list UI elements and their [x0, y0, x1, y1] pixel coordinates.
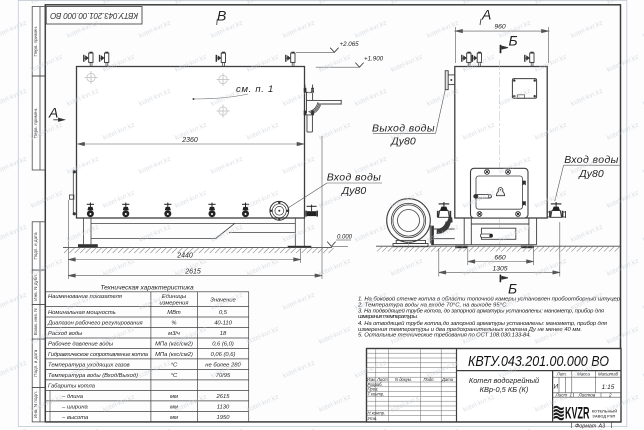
svg-text:2615: 2615: [216, 394, 231, 400]
svg-text:Перв. примен.: Перв. примен.: [33, 26, 38, 57]
svg-text:Диапазон рабочего регулировани: Диапазон рабочего регулирования: [47, 320, 143, 326]
svg-text:5. Остальные технические требо: 5. Остальные технические требования по О…: [358, 333, 531, 339]
svg-text:Подп. и дата: Подп. и дата: [33, 232, 38, 260]
svg-text:И: И: [553, 384, 558, 391]
svg-text:МПа (кгс/см2): МПа (кгс/см2): [155, 341, 193, 347]
svg-text:А: А: [48, 105, 58, 121]
svg-text:В: В: [217, 8, 226, 24]
svg-text:Взам. инв. N: Взам. инв. N: [33, 308, 38, 335]
svg-text:0,5: 0,5: [219, 310, 228, 316]
svg-text:измерения температуры.: измерения температуры.: [358, 314, 418, 320]
svg-text:Лит.: Лит.: [556, 372, 567, 377]
svg-text:Т.контр.: Т.контр.: [368, 392, 385, 397]
svg-text:0,6 (6,0): 0,6 (6,0): [212, 341, 234, 347]
svg-text:1305: 1305: [492, 266, 507, 273]
svg-text:м3/ч: м3/ч: [168, 331, 180, 337]
svg-text:А: А: [481, 7, 491, 23]
svg-text:660: 660: [494, 255, 506, 262]
svg-text:1130: 1130: [217, 404, 230, 410]
svg-text:Б: Б: [508, 281, 517, 297]
svg-text:КВТУ.043.201.00.000 ВО: КВТУ.043.201.00.000 ВО: [50, 11, 138, 20]
svg-text:°С: °С: [171, 373, 178, 379]
svg-text:1:15: 1:15: [602, 384, 615, 391]
svg-text:+1.900: +1.900: [364, 56, 384, 63]
svg-text:Вход воды: Вход воды: [327, 172, 382, 184]
svg-text:мм: мм: [170, 394, 178, 400]
svg-text:ЗАВОД РЭП: ЗАВОД РЭП: [592, 414, 615, 419]
svg-text:960: 960: [494, 24, 506, 31]
svg-text:2: 2: [608, 392, 612, 397]
svg-text:Масштаб: Масштаб: [598, 372, 619, 377]
svg-text:КВр-0,5 КБ (К): КВр-0,5 КБ (К): [480, 385, 529, 394]
svg-text:Утв.: Утв.: [368, 416, 378, 421]
svg-text:°С: °С: [171, 362, 178, 368]
svg-text:1950: 1950: [217, 415, 231, 421]
svg-text:18: 18: [220, 331, 227, 337]
svg-text:%: %: [171, 320, 176, 326]
svg-text:Температура воды (Вход/Выход): Температура воды (Вход/Выход): [48, 373, 138, 379]
svg-text:Номинальная мощность: Номинальная мощность: [48, 310, 116, 316]
svg-text:Дата: Дата: [441, 377, 454, 382]
svg-text:МВт: МВт: [167, 310, 181, 316]
svg-text:Формат: Формат: [575, 423, 597, 429]
svg-text:– высота: – высота: [61, 415, 89, 421]
svg-text:Листов: Листов: [578, 392, 596, 397]
svg-text:Инв. N дубл.: Инв. N дубл.: [33, 274, 38, 301]
svg-text:KVZR: KVZR: [565, 404, 590, 422]
svg-text:– ширина: – ширина: [61, 404, 89, 410]
svg-text:Гидравлическое сопротивление к: Гидравлическое сопротивление котла: [48, 352, 149, 358]
svg-text:Техническая характеристика: Техническая характеристика: [100, 285, 194, 292]
svg-text:+2.065: +2.065: [340, 41, 360, 48]
svg-text:– длина: – длина: [61, 394, 84, 400]
svg-text:40-110: 40-110: [214, 320, 232, 326]
svg-text:1: 1: [570, 392, 573, 397]
svg-text:мм: мм: [170, 415, 178, 421]
svg-text:Габариты котла: Габариты котла: [48, 383, 96, 389]
svg-text:0,06 (0,6): 0,06 (0,6): [211, 352, 236, 358]
svg-text:МПа (кгс/см2): МПа (кгс/см2): [155, 352, 193, 358]
svg-text:2440: 2440: [176, 253, 193, 260]
svg-text:Подп. и дата: Подп. и дата: [33, 349, 38, 377]
svg-text:N докум.: N докум.: [395, 377, 412, 382]
